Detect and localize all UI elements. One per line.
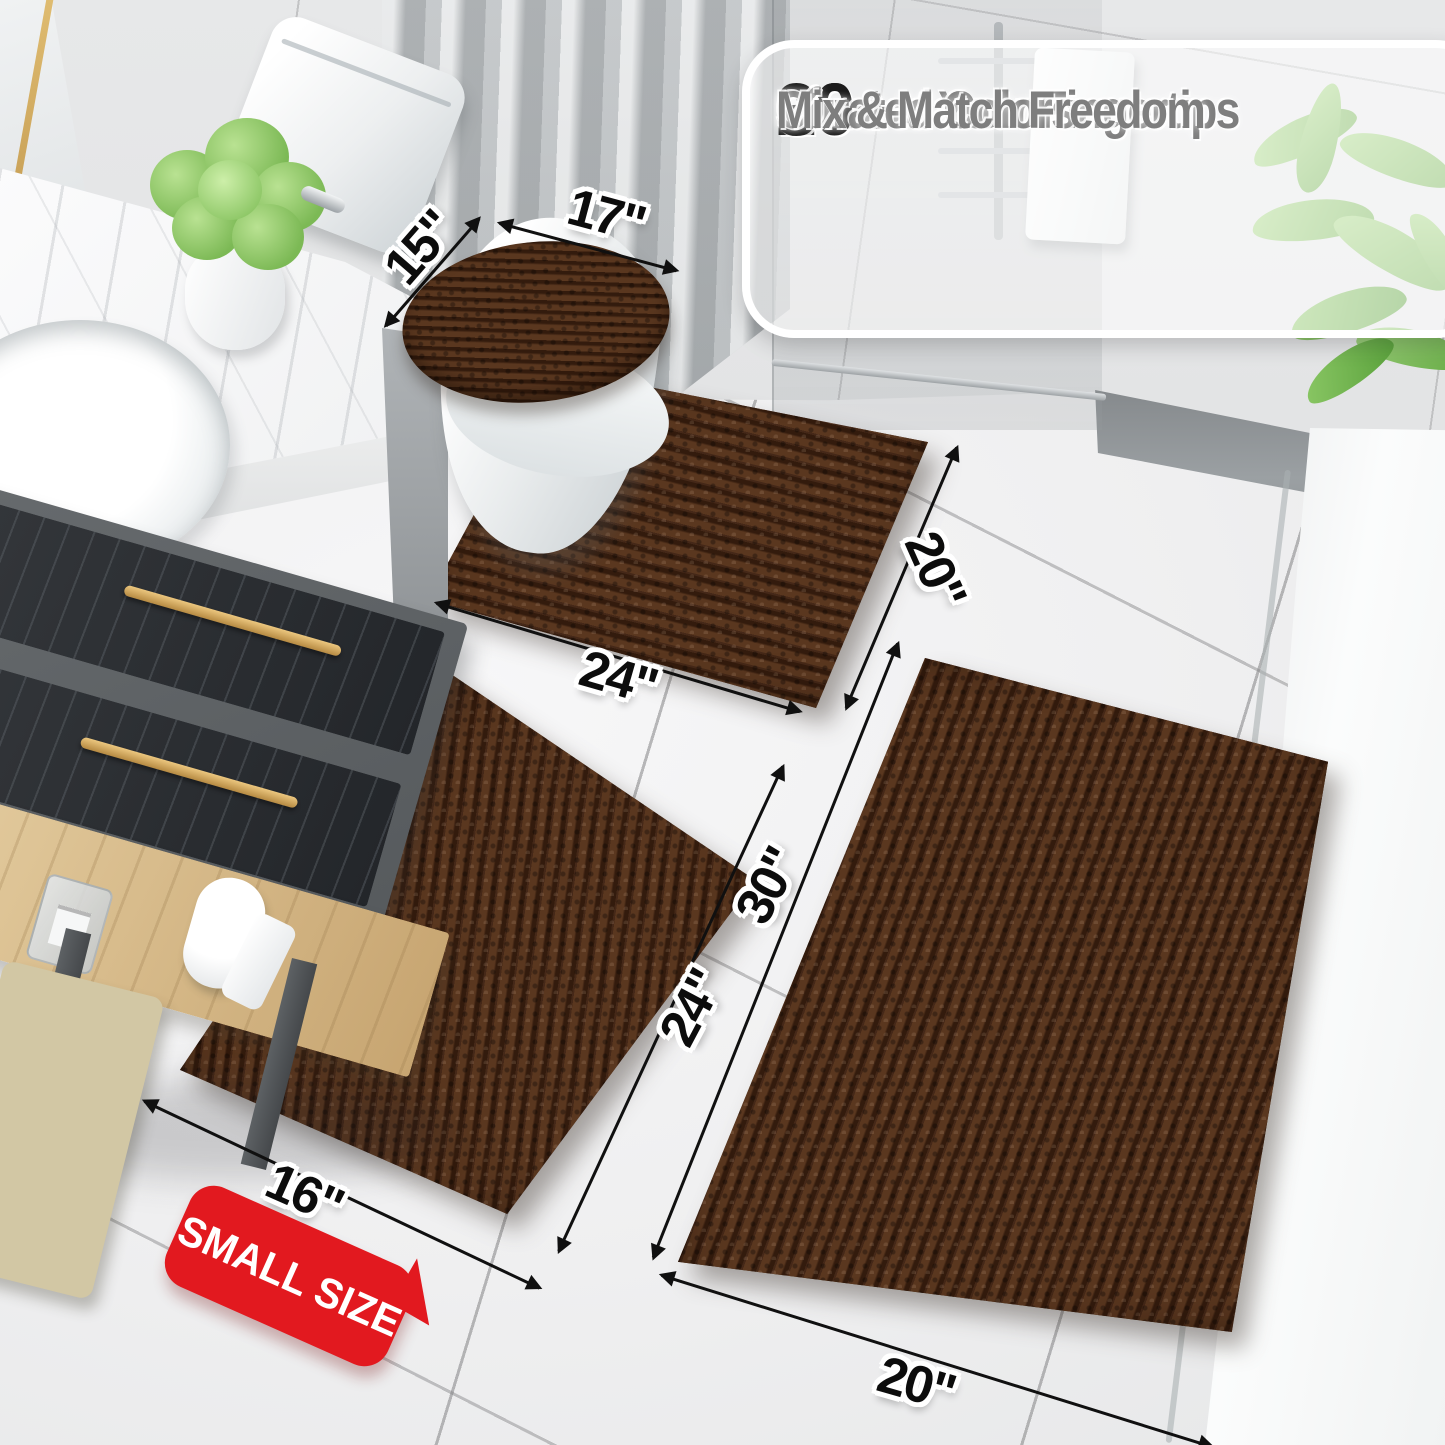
drawer-handle xyxy=(79,736,298,809)
feature-label: Mix & Match Freedom xyxy=(776,84,1204,137)
potted-plant xyxy=(198,160,262,220)
large-bath-rug xyxy=(678,658,1328,1332)
drawer-handle xyxy=(123,584,342,657)
large-rug-texture xyxy=(678,658,1328,1332)
feature-callout-box: ✓ 20+ Sizes at Your Fingertips ✓ 30+ Cur… xyxy=(742,40,1445,338)
bathroom-product-photo: 15" 17" 20" 24" 24" 30" 16" 20" ✓ 20+ Si… xyxy=(0,0,1445,1445)
